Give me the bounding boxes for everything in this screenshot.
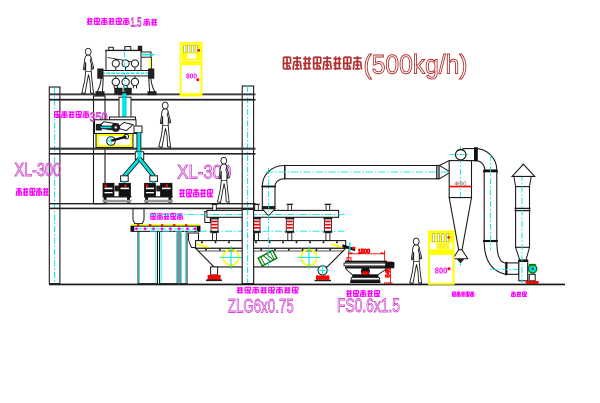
svg-text:800: 800 [186, 72, 197, 81]
svg-text:1.5: 1.5 [131, 16, 142, 30]
svg-text:(500kg/h): (500kg/h) [364, 50, 468, 80]
svg-text:800: 800 [435, 267, 448, 276]
svg-text:ZLG6x0.75: ZLG6x0.75 [228, 296, 294, 318]
svg-text:XL-300: XL-300 [15, 160, 62, 180]
svg-text:1500: 1500 [358, 249, 370, 255]
svg-text:FS0.6x1.5: FS0.6x1.5 [337, 295, 400, 317]
